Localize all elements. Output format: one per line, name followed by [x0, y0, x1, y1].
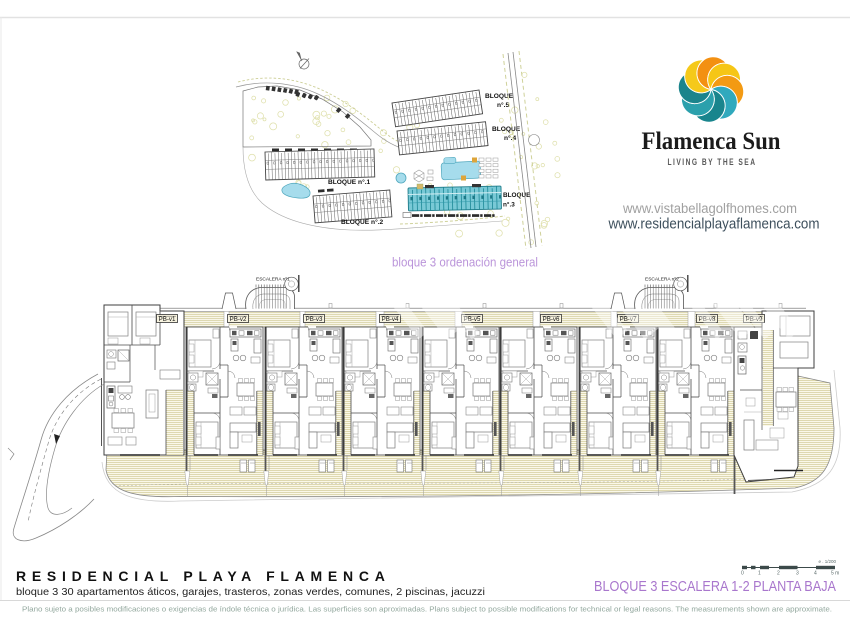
svg-text:3: 3 [796, 571, 799, 577]
svg-text:0: 0 [741, 571, 744, 577]
svg-text:PB-v3: PB-v3 [306, 316, 323, 323]
svg-text:Plano sujeto a posibles modifi: Plano sujeto a posibles modificaciones o… [22, 605, 832, 614]
svg-text:Flamenca Sun: Flamenca Sun [642, 128, 781, 155]
svg-text:4: 4 [814, 571, 817, 577]
svg-text:5 m: 5 m [831, 571, 839, 577]
svg-text:RESIDENCIAL PLAYA FLAMENCA: RESIDENCIAL PLAYA FLAMENCA [16, 568, 390, 584]
svg-text:PB-v4: PB-v4 [382, 316, 399, 323]
svg-text:ESCALERA nº2: ESCALERA nº2 [645, 277, 679, 283]
svg-text:www.vistabellagolfhomes.com: www.vistabellagolfhomes.com [622, 201, 797, 216]
svg-text:www.residencialplayaflamenca.c: www.residencialplayaflamenca.com [608, 217, 820, 233]
svg-text:2: 2 [777, 571, 780, 577]
svg-text:PB-v2: PB-v2 [230, 316, 247, 323]
svg-text:PB-v6: PB-v6 [543, 316, 560, 323]
svg-text:BLOQUE: BLOQUE [485, 93, 514, 100]
svg-text:BLOQUE n°.1: BLOQUE n°.1 [328, 178, 371, 186]
svg-text:n°.5: n°.5 [497, 101, 509, 109]
svg-text:PB-v1: PB-v1 [159, 316, 176, 323]
svg-text:n°.3: n°.3 [503, 201, 515, 209]
svg-text:1: 1 [758, 571, 761, 577]
svg-text:BLOQUE 3 ESCALERA 1-2 PLANTA: BLOQUE 3 ESCALERA 1-2 PLANTA BAJA [594, 579, 836, 595]
svg-text:bloque 3 30 apartamentos átic: bloque 3 30 apartamentos áticos, garajes… [16, 587, 485, 598]
svg-text:LIVING BY THE SEA: LIVING BY THE SEA [668, 157, 757, 167]
svg-text:bloque 3 ordenación general: bloque 3 ordenación general [392, 256, 538, 270]
svg-text:BLOQUE n°.2: BLOQUE n°.2 [341, 218, 384, 226]
svg-text:ESCALERA nº1: ESCALERA nº1 [256, 277, 290, 283]
svg-text:n°.4: n°.4 [504, 134, 516, 142]
svg-text:BLOQUE: BLOQUE [503, 192, 531, 199]
svg-text:e . 1/200: e . 1/200 [818, 559, 836, 564]
